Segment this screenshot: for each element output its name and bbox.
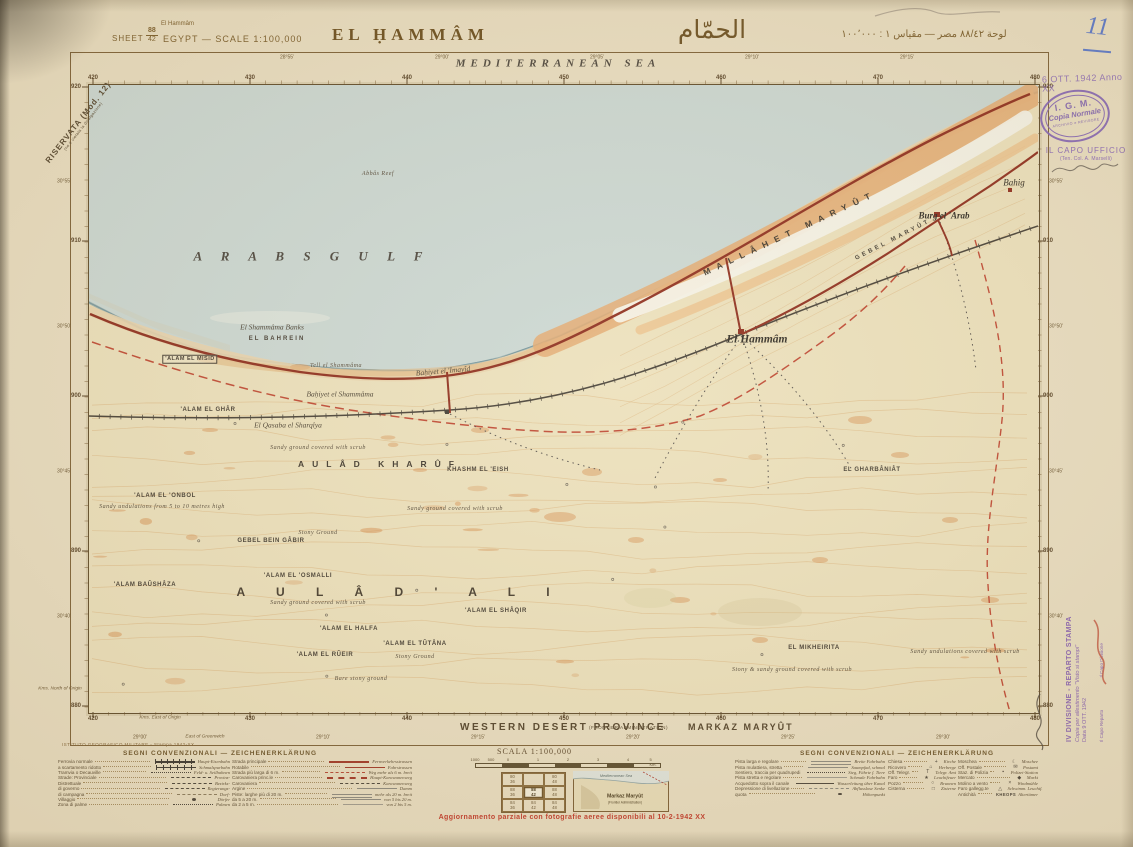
pencil-scribble: [875, 9, 1000, 16]
handwritten-number: 11: [1085, 13, 1111, 40]
inset-sub-label: (Frontier Administration): [608, 801, 642, 804]
inset-sea-label: Mediterranean Sea: [600, 775, 632, 779]
capo-ufficio-signature: [1052, 164, 1118, 172]
ink-overlay: [0, 0, 1133, 847]
map-sheet: MEDITERRANEAN SEAA R A B S G U L FAbbâs …: [0, 0, 1133, 847]
inset-name-label: Markaz Maryût: [607, 794, 643, 799]
red-pencil-signature: [1094, 620, 1106, 684]
margin-signature: [1036, 694, 1042, 750]
